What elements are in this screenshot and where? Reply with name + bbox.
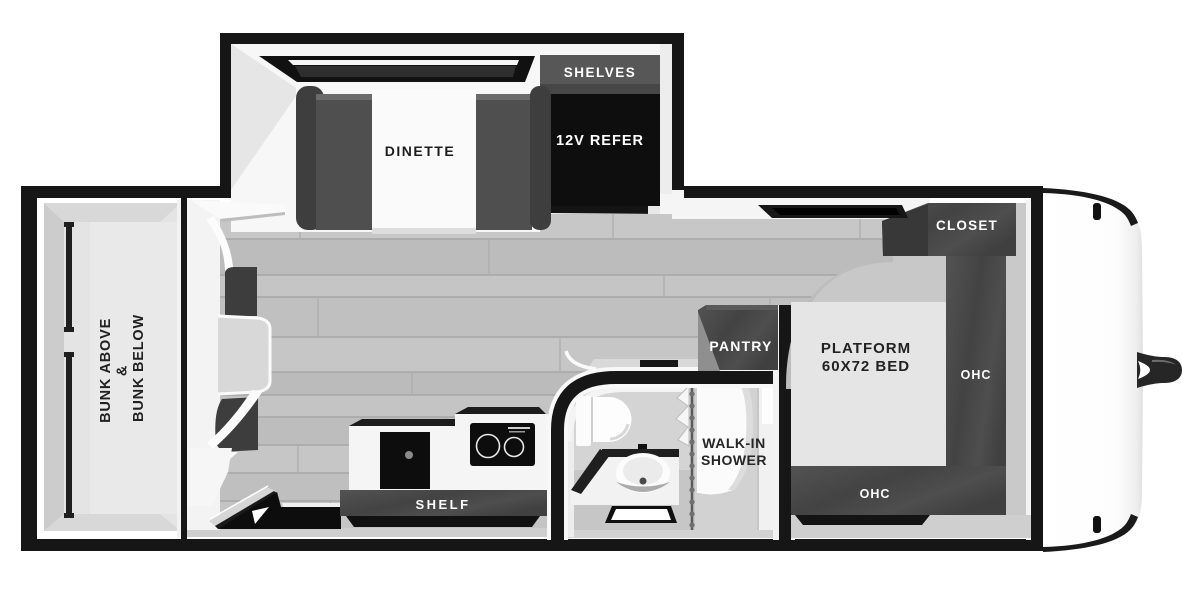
svg-text:PLATFORM: PLATFORM [821,340,911,357]
svg-text:OHC: OHC [860,487,891,501]
svg-text:WALK-IN: WALK-IN [702,435,765,451]
svg-text:OHC: OHC [961,368,992,382]
svg-text:SHELVES: SHELVES [564,65,637,80]
svg-text:SHELF: SHELF [415,497,470,512]
svg-text:60X72 BED: 60X72 BED [822,358,910,375]
svg-text:CLOSET: CLOSET [936,218,998,233]
svg-text:PANTRY: PANTRY [709,338,772,354]
svg-text:SHOWER: SHOWER [701,452,767,468]
svg-text:12V REFER: 12V REFER [556,133,644,149]
svg-text:DINETTE: DINETTE [385,143,455,159]
